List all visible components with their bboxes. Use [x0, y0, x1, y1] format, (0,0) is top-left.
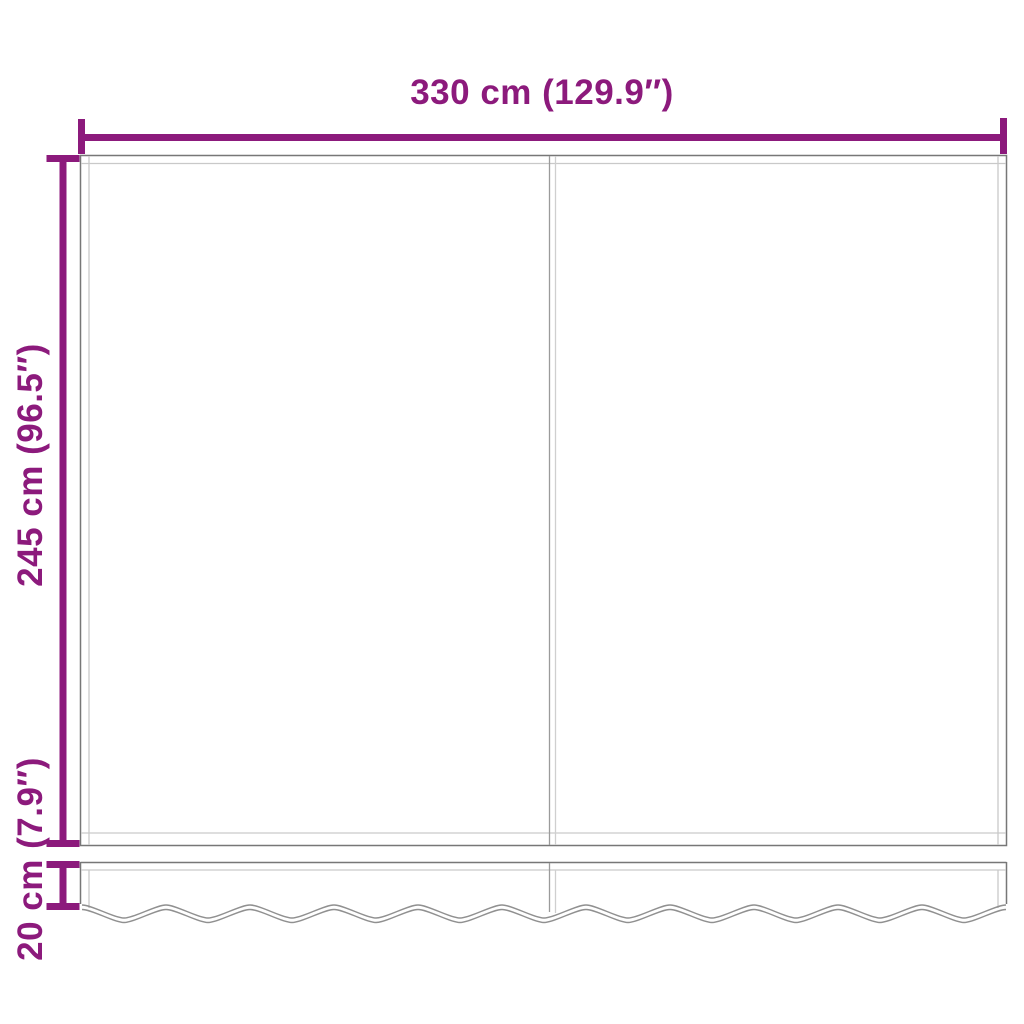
valance-wave-edge-inner — [82, 910, 1006, 923]
dimension-diagram: 330 cm (129.9″) 245 cm (96.5″) 20 cm (7.… — [0, 0, 1024, 1024]
height-dimension-label: 245 cm (96.5″) — [11, 343, 50, 587]
valance-hem-lines — [81, 870, 1006, 908]
fabric-panel-outline — [81, 156, 1007, 846]
valance-height-dimension-label: 20 cm (7.9″) — [11, 757, 50, 961]
width-dimension-line — [82, 118, 1004, 154]
diagram-canvas: 330 cm (129.9″) 245 cm (96.5″) 20 cm (7.… — [0, 0, 1024, 1024]
valance-wave-edge-outer — [82, 905, 1006, 918]
valance-height-dimension-line — [47, 865, 80, 907]
valance-strip — [81, 862, 1007, 923]
width-dimension-label: 330 cm (129.9″) — [410, 73, 674, 112]
valance-outline — [81, 862, 1007, 904]
fabric-panel — [81, 156, 1007, 846]
height-dimension-line — [47, 159, 80, 844]
